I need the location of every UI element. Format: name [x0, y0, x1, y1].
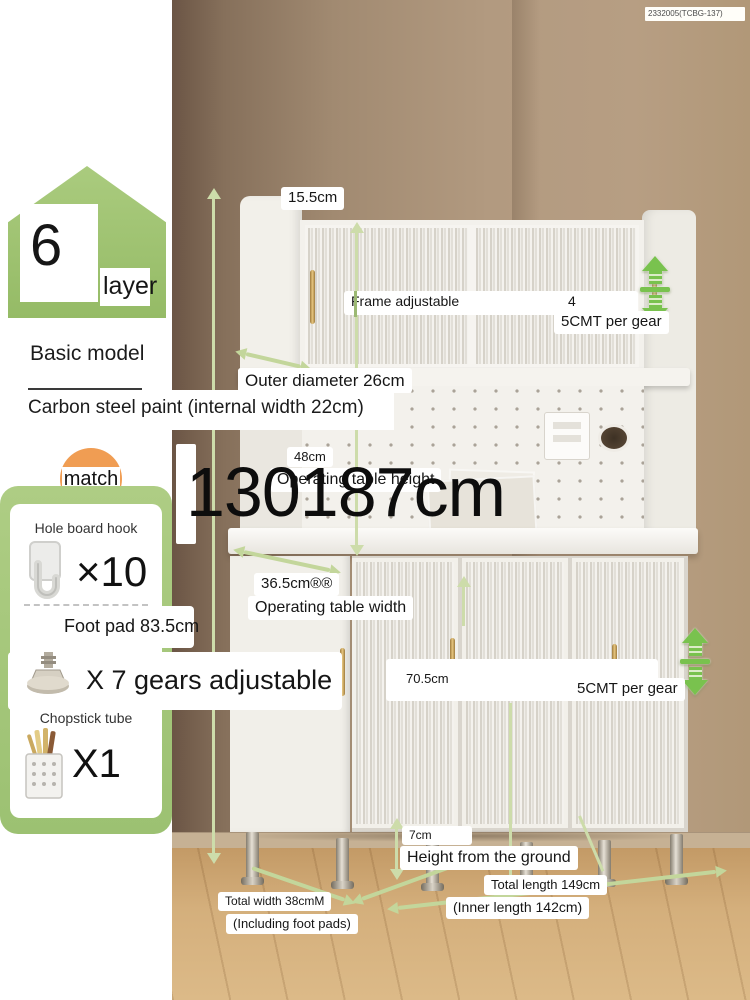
hook-name: Hole board hook — [10, 504, 162, 536]
up-arrow-icon — [682, 628, 708, 643]
model-material: Carbon steel paint (internal width 22cm) — [0, 390, 394, 419]
inner-height-arrow-icon — [462, 586, 465, 626]
adjust-bar-icon — [640, 287, 670, 292]
hutch-left-handle — [310, 270, 315, 324]
measure-line-tick — [354, 291, 357, 317]
layer-badge-number-box: 6 — [20, 204, 98, 302]
chopstick-name: Chopstick tube — [10, 710, 162, 726]
outlet-slot — [553, 422, 581, 429]
foot-pad-name: Foot pad 83.5cm — [12, 606, 194, 637]
adjust-bar-icon — [680, 659, 710, 664]
gear-note-bottom-label: 5CMT per gear — [570, 678, 685, 701]
hook-qty: ×10 — [76, 548, 147, 596]
ground-clearance-value-label: 7cm — [402, 826, 472, 845]
adjustable-foot — [246, 832, 259, 880]
overall-size-text: 130187cm — [186, 452, 505, 532]
table-width-label: Operating table width — [248, 596, 413, 620]
foot-pad-label-box: Foot pad 83.5cm — [12, 606, 194, 648]
layer-badge-label-box: layer — [100, 268, 150, 306]
table-width-value-label: 36.5cm®® — [254, 573, 339, 596]
hook-icon — [22, 540, 70, 604]
total-width-note-label: (Including foot pads) — [226, 914, 358, 934]
up-arrow-icon — [642, 256, 668, 271]
clearance-measure-arrow — [395, 828, 398, 870]
outlet-panel — [544, 412, 590, 460]
product-code-label: 2332005(TCBG-137) — [645, 7, 745, 21]
product-annotation-image: 2332005(TCBG-137) 15.5cm Frame adjustabl… — [0, 0, 750, 1000]
total-width-label: Total width 38cmM — [218, 892, 331, 911]
frame-adjustable-value: 4 — [568, 293, 576, 311]
model-material-band: Carbon steel paint (internal width 22cm) — [0, 390, 394, 430]
down-arrow-icon — [682, 680, 708, 695]
layer-badge-label: layer — [103, 272, 157, 301]
frame-adjustable-label: Frame adjustable — [351, 293, 459, 309]
adjust-stem — [689, 643, 702, 656]
adjust-stem — [689, 667, 702, 680]
layer-badge-number: 6 — [20, 204, 98, 279]
outlet-slot — [553, 435, 581, 442]
vent-hole — [598, 424, 630, 452]
gear-note-top-label: 5CMT per gear — [554, 311, 669, 334]
model-name: Basic model — [30, 342, 144, 366]
chopstick-tube-icon — [18, 726, 72, 804]
ground-clearance-label: Height from the ground — [400, 846, 578, 870]
chopstick-qty: X1 — [72, 742, 121, 787]
adjust-stem — [649, 295, 662, 308]
adjust-stem — [649, 271, 662, 284]
foot-pad-icon — [20, 650, 76, 706]
top-depth-label: 15.5cm — [281, 187, 344, 210]
total-length-label: Total length 149cm — [484, 875, 607, 895]
total-length-note-label: (Inner length 142cm) — [446, 897, 589, 919]
adjustable-foot — [336, 838, 349, 884]
